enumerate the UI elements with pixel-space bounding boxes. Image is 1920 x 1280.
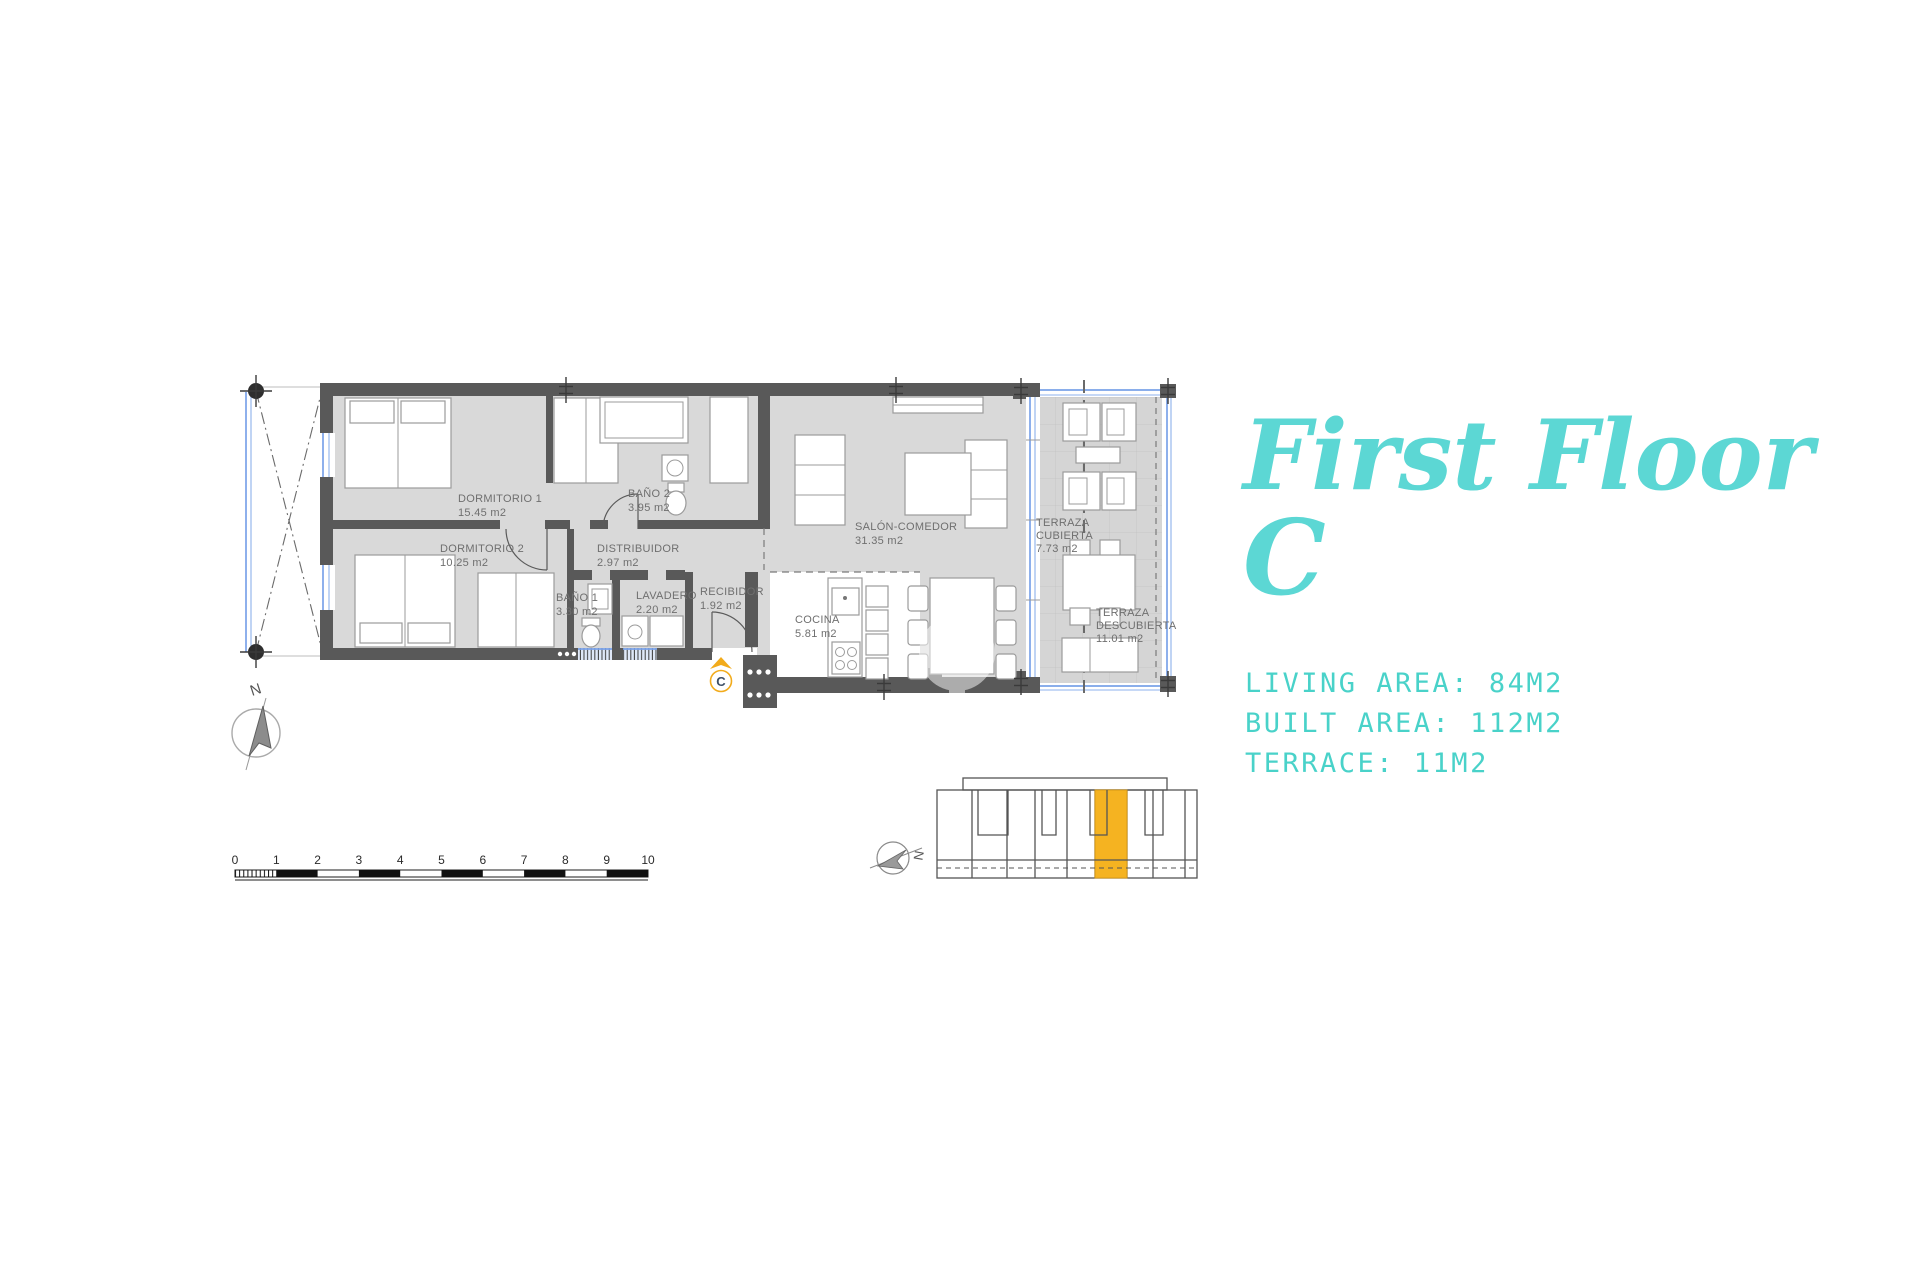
room-label-salon-name: SALÓN-COMEDOR <box>855 520 957 533</box>
highlighted-unit <box>1095 790 1127 878</box>
room-label-lavadero-area: 2.20 m2 <box>636 604 678 616</box>
room-label-dormitorio1-area: 15.45 m2 <box>458 507 506 519</box>
room-label-terraza-descubierta-area: 11.01 m2 <box>1096 633 1143 645</box>
scale-5: 5 <box>438 853 445 867</box>
compass-needle <box>249 706 271 756</box>
north-compass: N <box>232 680 280 770</box>
scale-6: 6 <box>479 853 486 867</box>
room-label-terraza-descubierta-name2: DESCUBIERTA <box>1096 620 1177 632</box>
scale-0: 0 <box>232 853 239 867</box>
entrance-arrow-icon <box>710 657 732 669</box>
stat-living-area: LIVING AREA: 84M2 <box>1245 668 1564 699</box>
room-label-cocina-area: 5.81 m2 <box>795 628 837 640</box>
room-label-lavadero-name: LAVADERO <box>636 590 697 602</box>
locator-compass: N <box>870 842 927 874</box>
room-label-salon-area: 31.35 m2 <box>855 535 903 547</box>
room-label-dormitorio2-area: 10.25 m2 <box>440 557 488 569</box>
scale-7: 7 <box>521 853 528 867</box>
room-label-terraza-descubierta-name: TERRAZA <box>1096 607 1150 619</box>
room-label-bano2-area: 3.95 m2 <box>628 502 670 514</box>
room-label-bano1-area: 3.30 m2 <box>556 606 598 618</box>
page-title-line1: First Floor <box>1243 408 1813 504</box>
room-label-distribuidor-area: 2.97 m2 <box>597 557 639 569</box>
scale-4: 4 <box>397 853 404 867</box>
room-label-cocina-name: COCINA <box>795 614 840 626</box>
page-title-line2: C <box>1243 506 1326 610</box>
pergola-bay <box>240 375 322 668</box>
scale-10: 10 <box>641 853 655 867</box>
locator-north-label: N <box>910 850 926 862</box>
room-label-bano1-name: BAÑO 1 <box>556 591 598 604</box>
floor-plan-svg: DORMITORIO 1 15.45 m2 DORMITORIO 2 10.25… <box>0 0 1920 1280</box>
room-label-distribuidor-name: DISTRIBUIDOR <box>597 543 679 555</box>
room-label-dormitorio1-name: DORMITORIO 1 <box>458 493 542 505</box>
room-label-recibidor-area: 1.92 m2 <box>700 600 742 612</box>
north-label: N <box>248 680 264 700</box>
unit-letter: C <box>716 674 726 689</box>
scale-8: 8 <box>562 853 569 867</box>
room-label-terraza-cubierta-area: 7.73 m2 <box>1036 543 1078 555</box>
room-label-terraza-cubierta-name2: CUBIERTA <box>1036 530 1093 542</box>
room-label-recibidor-name: RECIBIDOR <box>700 586 764 598</box>
stat-built-area: BUILT AREA: 112M2 <box>1245 708 1564 739</box>
scale-bar: 0 1 2 3 4 5 6 7 8 9 10 <box>232 853 655 880</box>
scale-2: 2 <box>314 853 321 867</box>
page: DORMITORIO 1 15.45 m2 DORMITORIO 2 10.25… <box>0 0 1920 1280</box>
scale-1: 1 <box>273 853 280 867</box>
watermark <box>919 615 995 714</box>
scale-3: 3 <box>356 853 363 867</box>
entrance-marker: C <box>710 657 732 692</box>
room-label-bano2-name: BAÑO 2 <box>628 487 670 500</box>
room-label-terraza-cubierta-name: TERRAZA <box>1036 517 1090 529</box>
stat-terrace: TERRACE: 11M2 <box>1245 748 1489 779</box>
scale-9: 9 <box>603 853 610 867</box>
building-locator: N <box>870 778 1197 878</box>
room-label-dormitorio2-name: DORMITORIO 2 <box>440 543 524 555</box>
